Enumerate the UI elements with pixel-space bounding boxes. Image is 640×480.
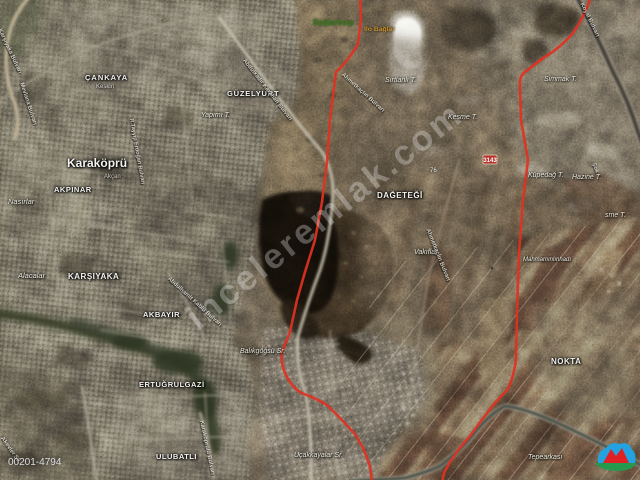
svg-text:3143: 3143 <box>483 158 497 164</box>
